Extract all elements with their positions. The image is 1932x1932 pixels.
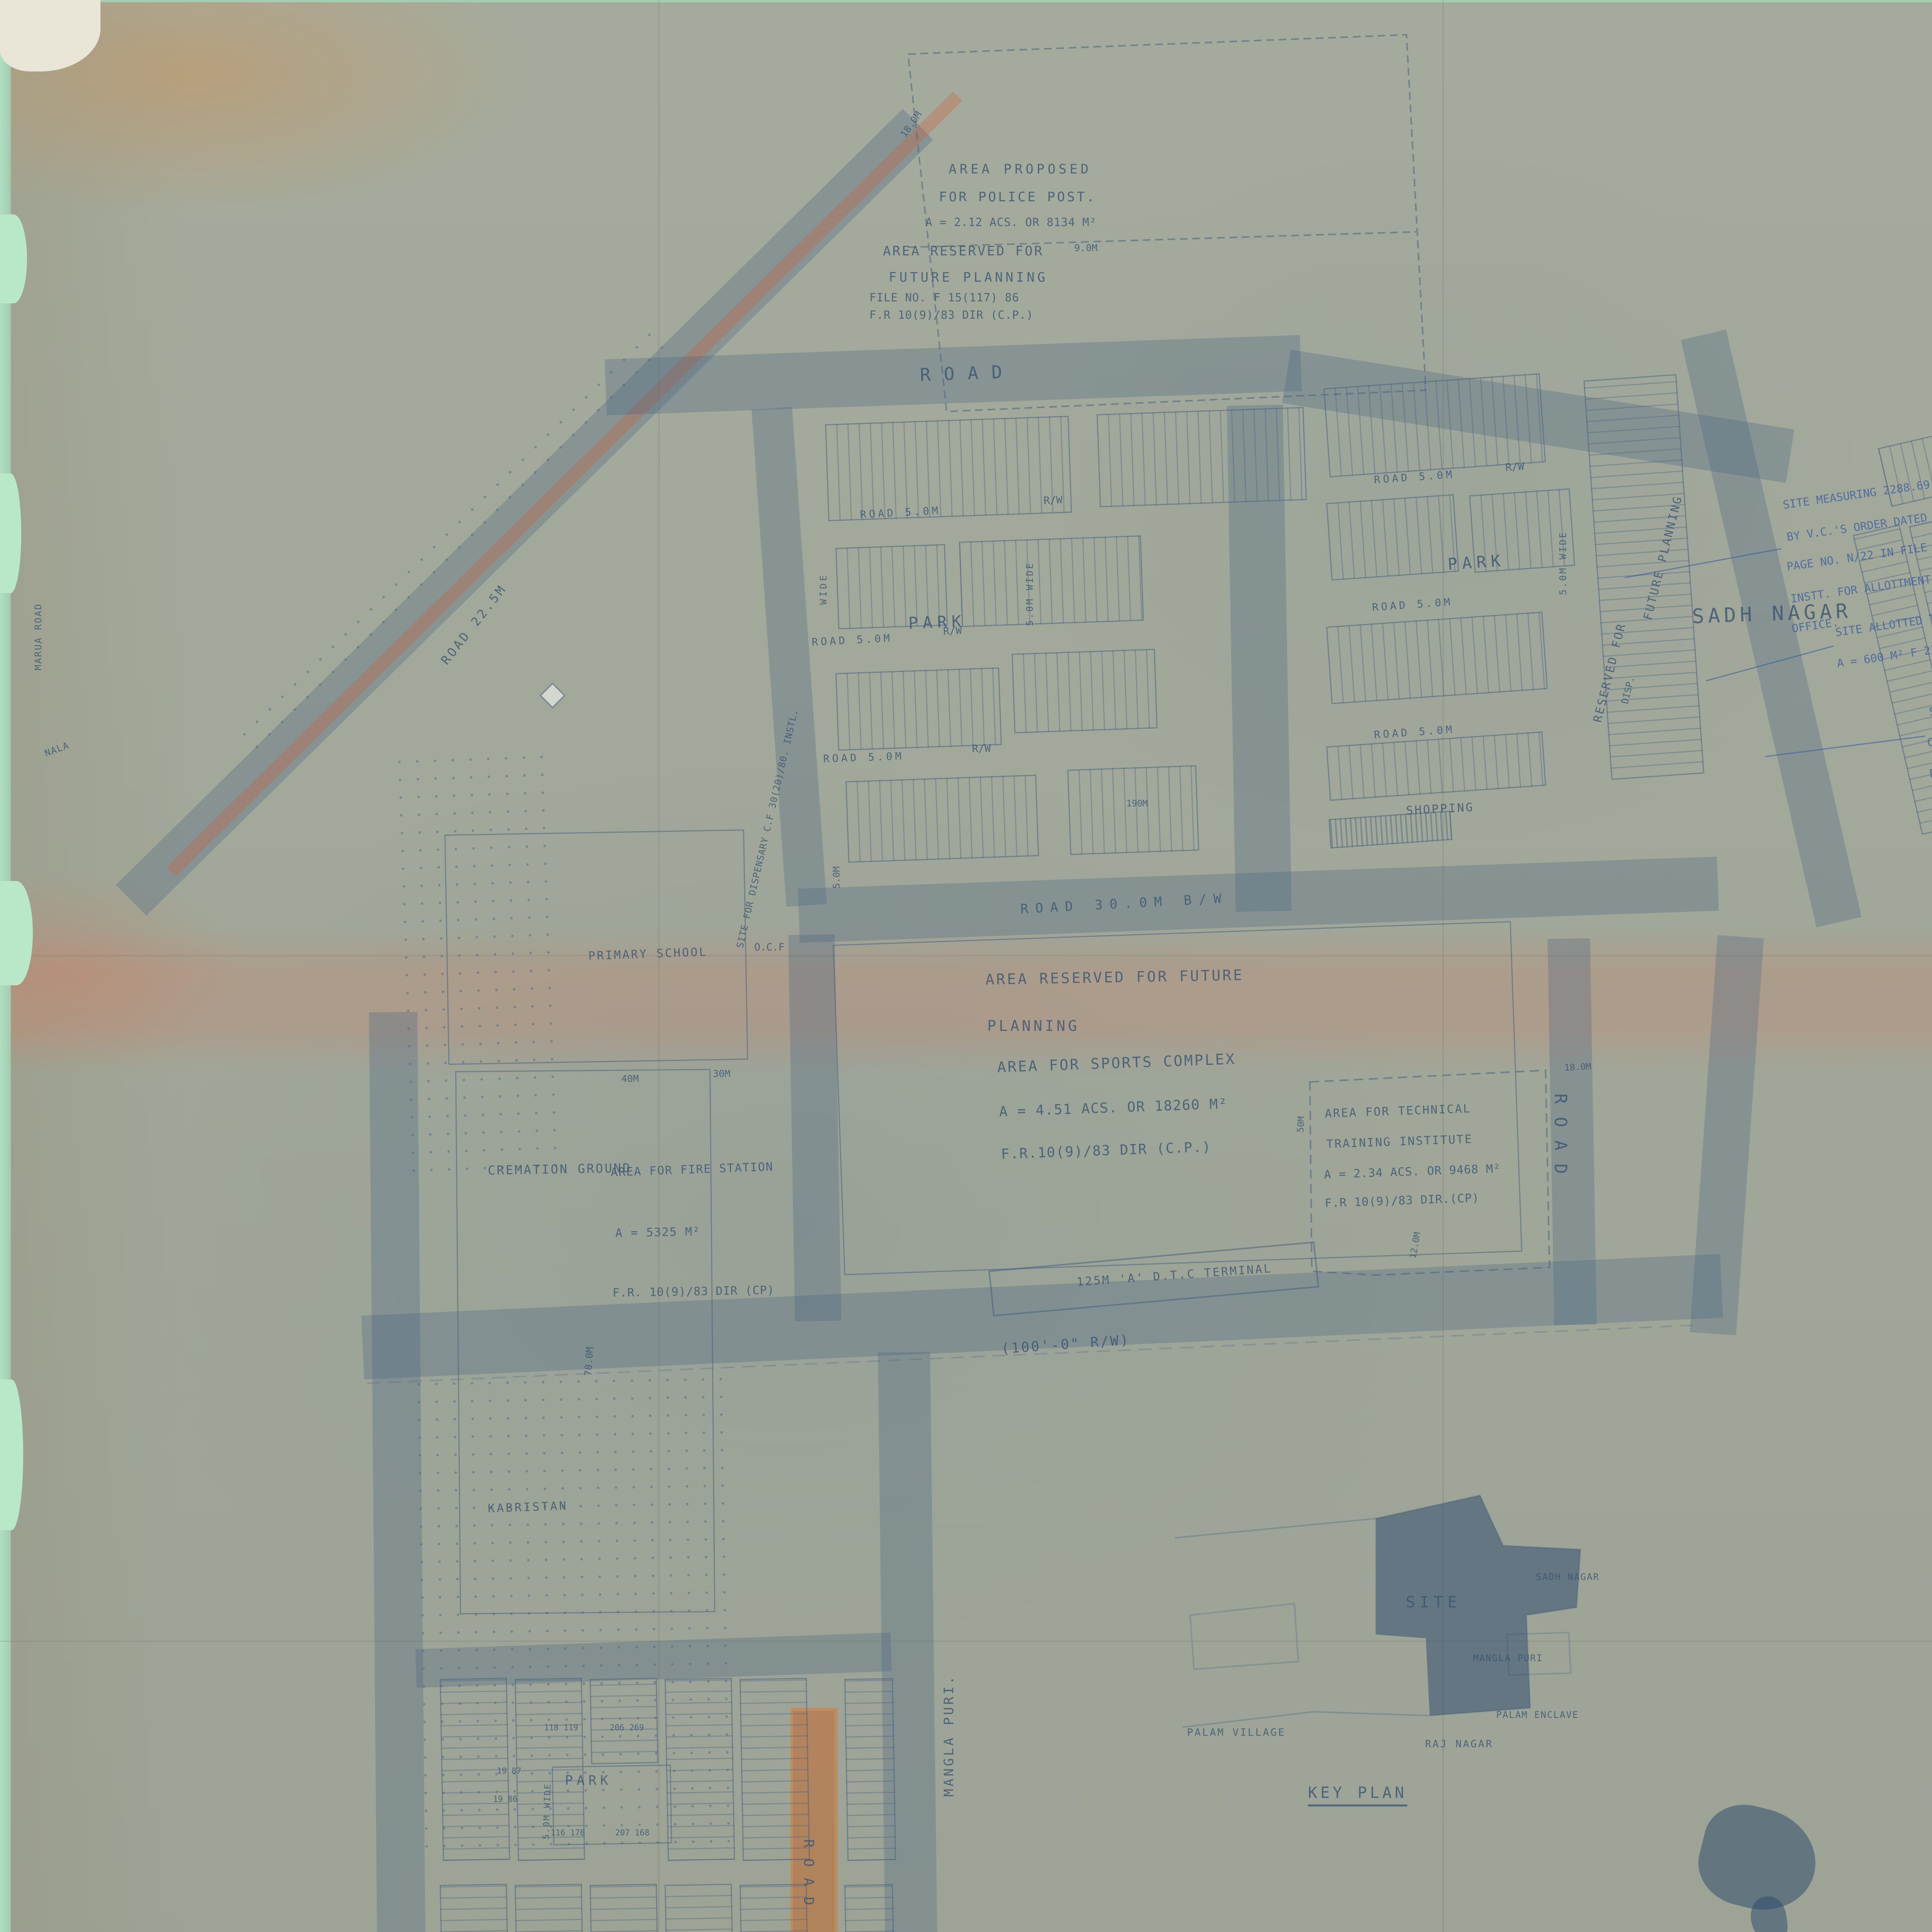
map-label: 19 87 — [497, 1767, 521, 1776]
map-label: A = 2.12 ACS. OR 8134 M² — [925, 216, 1097, 229]
map-label: RAJ NAGAR — [1425, 1739, 1493, 1750]
map-label: PARK — [565, 1774, 612, 1788]
map-label: MANGLA PURI. — [942, 1674, 956, 1797]
map-label: F.R 10(9)/83 DIR (C.P.) — [869, 309, 1034, 321]
map-label: MANGLA PURI — [1473, 1653, 1543, 1663]
map-label: KABRISTAN — [488, 1500, 568, 1515]
map-label: 30M — [713, 1068, 730, 1079]
map-label: 207 168 — [615, 1828, 650, 1837]
map-label: O.C.F — [754, 942, 784, 953]
map-label: PALAM VILLAGE — [1187, 1727, 1286, 1738]
map-label: AREA RESERVED FOR — [883, 244, 1044, 259]
map-label: PALAM ENCLAVE — [1496, 1710, 1579, 1720]
map-label: PARK — [908, 612, 966, 632]
map-label: A = 5325 M² — [615, 1225, 701, 1240]
map-label: 118 119 — [544, 1723, 578, 1732]
map-label: 70.0M — [583, 1347, 595, 1376]
map-label: R/W — [972, 743, 991, 755]
torn-edge — [0, 473, 21, 593]
map-label: FUTURE PLANNING — [889, 270, 1048, 285]
map-label: CREMATION GROUND — [488, 1162, 632, 1178]
torn-edge — [0, 881, 33, 985]
map-label: ROAD — [1551, 1094, 1570, 1187]
map-label: MARUA ROAD — [33, 603, 43, 671]
map-label: 5.0M WIDE — [1558, 531, 1568, 595]
map-label: WIDE — [818, 573, 828, 605]
map-label: 9.0M — [1074, 243, 1097, 253]
map-label: 5.0M — [832, 866, 842, 889]
map-label: PARK — [1447, 552, 1506, 573]
map-label: 50M — [1296, 1116, 1306, 1133]
map-label: ROAD — [920, 362, 1015, 384]
map-label: 19 86 — [493, 1795, 517, 1804]
map-label: R/W — [1043, 494, 1063, 507]
map-label: 18.0M — [1564, 1062, 1591, 1073]
map-label: 40M — [621, 1073, 639, 1084]
map-label: 190M — [1126, 799, 1148, 809]
map-label: SADH NAGAR — [1536, 1572, 1600, 1582]
torn-edge — [0, 214, 27, 303]
map-label: PLANNING — [987, 1018, 1080, 1034]
map-label: KEY PLAN — [1308, 1784, 1407, 1806]
map-label: 206 269 — [610, 1723, 644, 1732]
map-label: R/W — [1505, 461, 1525, 474]
map-label: ROAD — [801, 1839, 816, 1916]
map-label: SITE — [1406, 1594, 1461, 1611]
map-label: AREA PROPOSED — [949, 162, 1092, 177]
map-label: FOR POLICE POST. — [939, 190, 1097, 204]
map-label: FILE NO. F 15(117) 86 — [869, 292, 1019, 304]
map-label: 116 176 — [551, 1828, 585, 1837]
map-label: 5.0M WIDE — [1025, 562, 1035, 626]
map-label: F.R. 10(9)/83 DIR (CP) — [612, 1284, 775, 1299]
linework-overlay — [0, 0, 1932, 1932]
scanned-blueprint: AREA PROPOSEDFOR POLICE POST.A = 2.12 AC… — [0, 0, 1932, 1932]
torn-edge — [0, 1379, 23, 1530]
